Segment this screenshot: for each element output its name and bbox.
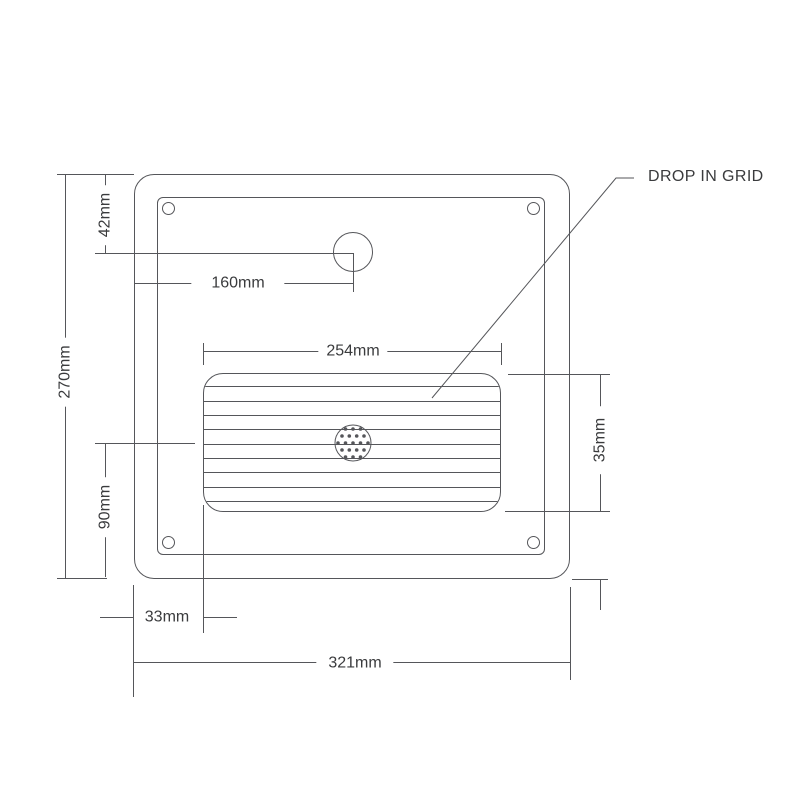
grid-slat — [204, 415, 500, 416]
dim-line-33-right — [203, 617, 237, 618]
dim-label-90mm: 90mm — [97, 477, 114, 537]
tick-254-left — [203, 343, 204, 365]
ext-line-panel-bottom-right — [572, 579, 608, 580]
ext-line-panel-right-lower — [570, 587, 571, 680]
grid-slat — [204, 472, 500, 473]
grid-slat — [204, 401, 500, 402]
dim-stub-bottom-right — [600, 580, 601, 610]
dim-label-33mm: 33mm — [137, 609, 197, 626]
technical-drawing-sink-panel: 42mm 160mm 270mm 90mm 254mm 35mm 33mm 32… — [0, 0, 800, 800]
dim-label-35mm: 35mm — [592, 406, 609, 474]
screw-hole-top-left — [162, 202, 175, 215]
tick-160-right — [353, 253, 354, 292]
dim-label-254mm: 254mm — [318, 343, 387, 360]
callout-drop-in-grid: DROP IN GRID — [648, 168, 764, 186]
dim-label-270mm: 270mm — [57, 337, 74, 406]
dim-line-33-left — [100, 617, 133, 618]
grid-slat — [204, 386, 500, 387]
screw-hole-top-right — [527, 202, 540, 215]
grid-slat — [204, 501, 500, 502]
tap-centerline — [95, 253, 353, 254]
ext-line-panel-top — [57, 174, 134, 175]
grid-slat — [204, 458, 500, 459]
grid-slat — [204, 444, 500, 445]
screw-hole-bottom-right — [527, 536, 540, 549]
ext-line-grid-top-right — [508, 374, 610, 375]
ext-line-panel-bottom-left — [57, 578, 107, 579]
dim-label-160mm: 160mm — [191, 275, 284, 292]
tick-254-right — [501, 343, 502, 365]
dim-label-42mm: 42mm — [97, 185, 114, 245]
ext-line-drain-center — [95, 443, 195, 444]
grid-slat — [204, 487, 500, 488]
ext-line-grid-bottom-right — [505, 511, 610, 512]
dim-label-321mm: 321mm — [316, 655, 393, 672]
ext-line-panel-left-lower — [133, 585, 134, 697]
grid-slat — [204, 429, 500, 430]
drop-in-grid — [203, 373, 501, 512]
ext-line-grid-left-lower — [203, 505, 204, 633]
screw-hole-bottom-left — [162, 536, 175, 549]
